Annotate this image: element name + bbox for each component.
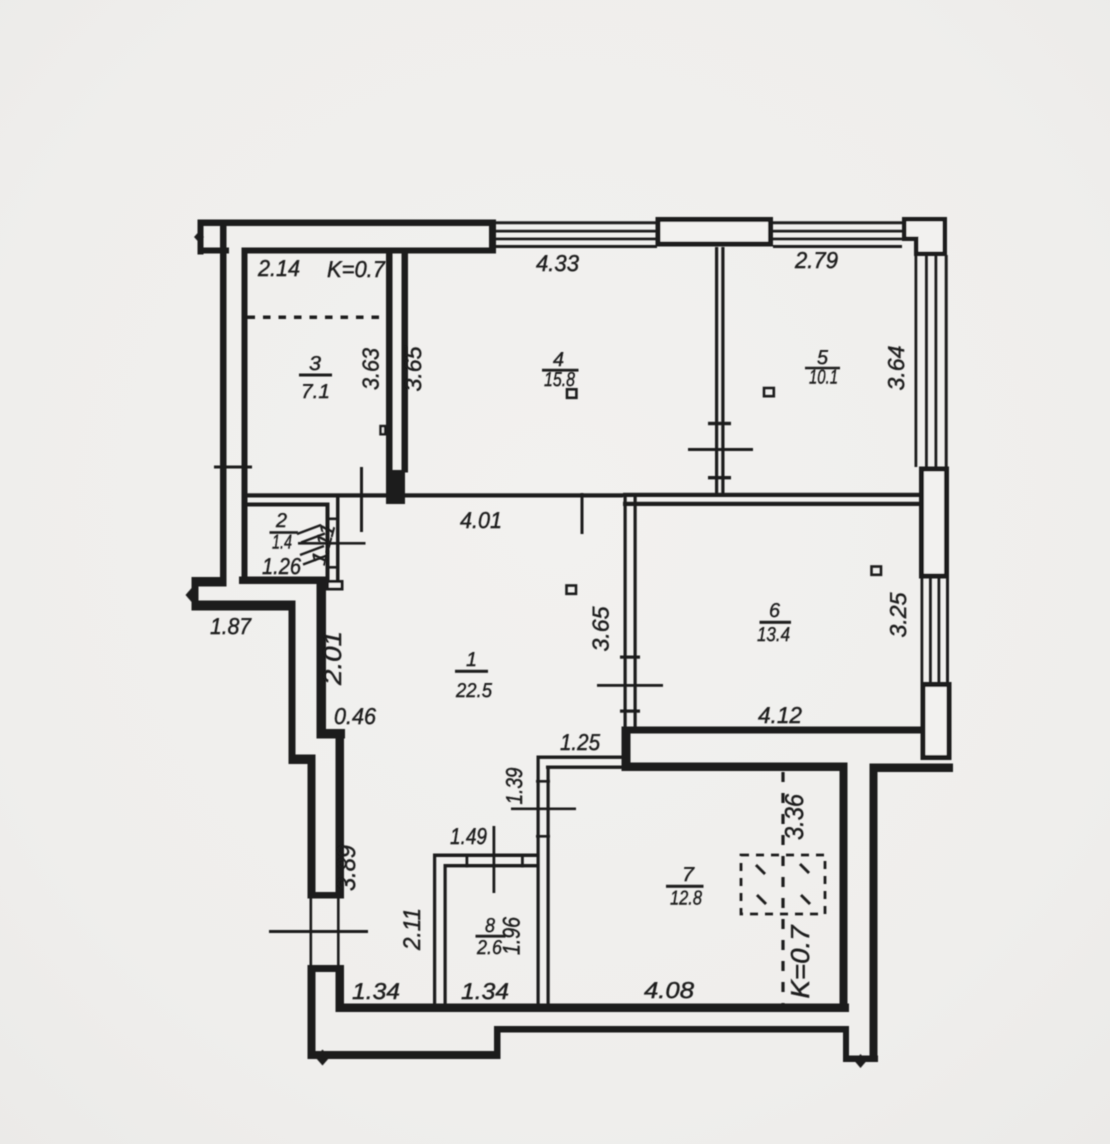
svg-text:10.1: 10.1 [809,367,838,389]
svg-text:1.34: 1.34 [461,978,509,1004]
svg-text:1: 1 [466,649,477,671]
svg-text:12.8: 12.8 [670,888,702,910]
svg-text:3.64: 3.64 [883,346,909,391]
svg-text:3: 3 [309,353,321,375]
svg-text:3.89: 3.89 [333,845,361,891]
svg-text:K=0.7: K=0.7 [785,924,815,999]
svg-text:0.46: 0.46 [334,703,376,729]
svg-text:7: 7 [682,864,695,886]
svg-text:3.36: 3.36 [779,794,809,840]
svg-text:1.26: 1.26 [262,553,301,579]
svg-text:8: 8 [485,915,495,937]
svg-text:15.8: 15.8 [544,369,575,391]
svg-text:22.5: 22.5 [455,680,493,702]
svg-text:3.65: 3.65 [400,346,426,391]
svg-text:1.4: 1.4 [272,532,292,554]
svg-text:1.34: 1.34 [352,978,400,1004]
svg-text:7.1: 7.1 [301,381,330,403]
svg-text:1.49: 1.49 [450,823,487,849]
svg-text:4.33: 4.33 [536,250,579,276]
svg-text:2.11: 2.11 [399,908,426,951]
svg-text:3.63: 3.63 [358,348,384,390]
svg-text:2: 2 [275,510,287,532]
svg-text:1.87: 1.87 [210,613,252,639]
svg-text:4.08: 4.08 [644,977,694,1003]
svg-text:1.25: 1.25 [560,729,600,755]
svg-text:3.25: 3.25 [885,592,911,637]
svg-text:4.01: 4.01 [460,507,502,533]
svg-text:13.4: 13.4 [757,624,790,646]
svg-text:4: 4 [553,349,564,371]
svg-text:2.14: 2.14 [257,255,300,281]
svg-text:6: 6 [769,600,781,622]
svg-text:1.39: 1.39 [501,767,527,804]
svg-text:2.01: 2.01 [319,631,347,686]
svg-text:3.65: 3.65 [588,606,614,651]
svg-text:2.79: 2.79 [794,247,838,273]
svg-text:4.12: 4.12 [758,702,802,728]
svg-text:2.6: 2.6 [476,937,503,959]
svg-text:K=0.7: K=0.7 [327,256,386,282]
